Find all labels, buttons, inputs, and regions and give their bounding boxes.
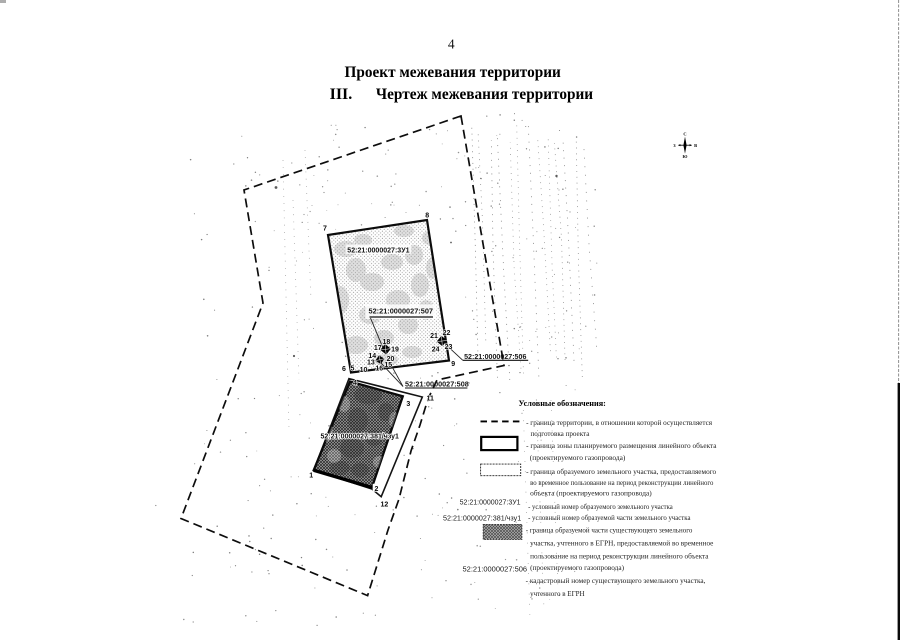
svg-text:23: 23 [445,344,453,351]
svg-text:9: 9 [451,361,455,368]
svg-text:участка, учтенного в ЕГРН, пре: участка, учтенного в ЕГРН, предоставляем… [530,539,714,548]
svg-text:52:21:0000027:381/чзу1: 52:21:0000027:381/чзу1 [321,434,399,441]
svg-text:52:21:0000027:508: 52:21:0000027:508 [405,379,469,388]
svg-text:7: 7 [323,226,327,233]
svg-text:во временное пользование на пе: во временное пользование на период рекон… [530,478,713,487]
svg-text:6: 6 [342,366,346,373]
svg-text:17: 17 [374,345,382,352]
svg-text:16: 16 [375,365,383,372]
svg-text:4: 4 [448,36,455,51]
svg-text:Проект межевания территории: Проект межевания территории [345,64,561,81]
svg-text:- условный номер образуемой ча: - условный номер образуемой части земель… [528,513,691,522]
svg-text:15: 15 [384,362,392,369]
svg-text:Ю: Ю [683,154,688,159]
svg-text:13: 13 [367,359,375,366]
svg-text:С: С [683,131,686,136]
svg-text:5: 5 [350,366,354,373]
svg-text:4: 4 [353,380,357,387]
svg-text:учтенного в ЕГРН: учтенного в ЕГРН [530,589,585,598]
svg-text:10: 10 [360,367,368,374]
svg-text:1: 1 [309,472,313,479]
svg-text:21: 21 [430,333,438,340]
svg-text:52:21:0000027:381/чзу1: 52:21:0000027:381/чзу1 [443,514,521,523]
svg-text:2: 2 [375,486,379,493]
svg-text:52:21:0000027:3У1: 52:21:0000027:3У1 [347,245,410,254]
svg-text:- условный номер образуемого з: - условный номер образуемого земельного … [528,502,673,511]
svg-text:Условные обозначения:: Условные обозначения: [519,399,607,408]
svg-text:22: 22 [443,330,451,337]
svg-text:III.: III. [330,86,353,103]
svg-text:- кадастровый номер существующ: - кадастровый номер существующего земель… [526,576,706,585]
svg-text:8: 8 [425,212,429,219]
svg-text:52:21:0000027:3У1: 52:21:0000027:3У1 [460,498,521,507]
svg-text:11: 11 [426,396,434,403]
svg-text:В: В [694,143,697,148]
svg-text:12: 12 [381,502,389,509]
svg-text:3: 3 [406,401,410,408]
svg-text:(проектируемого газопровода): (проектируемого газопровода) [530,563,624,572]
svg-text:18: 18 [383,339,391,346]
svg-text:- граница зоны планируемого ра: - граница зоны планируемого размещения л… [526,441,717,450]
svg-text:- граница территории, в отноше: - граница территории, в отношении которо… [526,418,712,427]
svg-text:52:21:0000027:506: 52:21:0000027:506 [463,565,528,574]
svg-text:подготовка проекта: подготовка проекта [531,429,590,438]
svg-text:52:21:0000027:507: 52:21:0000027:507 [369,307,434,316]
svg-text:пользование на период реконстр: пользование на период реконструкции лине… [530,552,709,561]
svg-text:19: 19 [391,347,399,354]
svg-text:Чертеж межевания территории: Чертеж межевания территории [376,86,593,103]
svg-text:- граница образуемой части сущ: - граница образуемой части существующего… [526,525,693,534]
svg-text:52:21:0000027:506: 52:21:0000027:506 [464,352,526,361]
svg-text:24: 24 [432,347,440,354]
svg-text:(проектируемого газопровода): (проектируемого газопровода) [530,453,626,462]
svg-text:объекта (проектируемого газоп: объекта (проектируемого газопровода) [530,488,652,497]
svg-text:- граница образуемого земельно: - граница образуемого земельного участка… [526,467,716,476]
